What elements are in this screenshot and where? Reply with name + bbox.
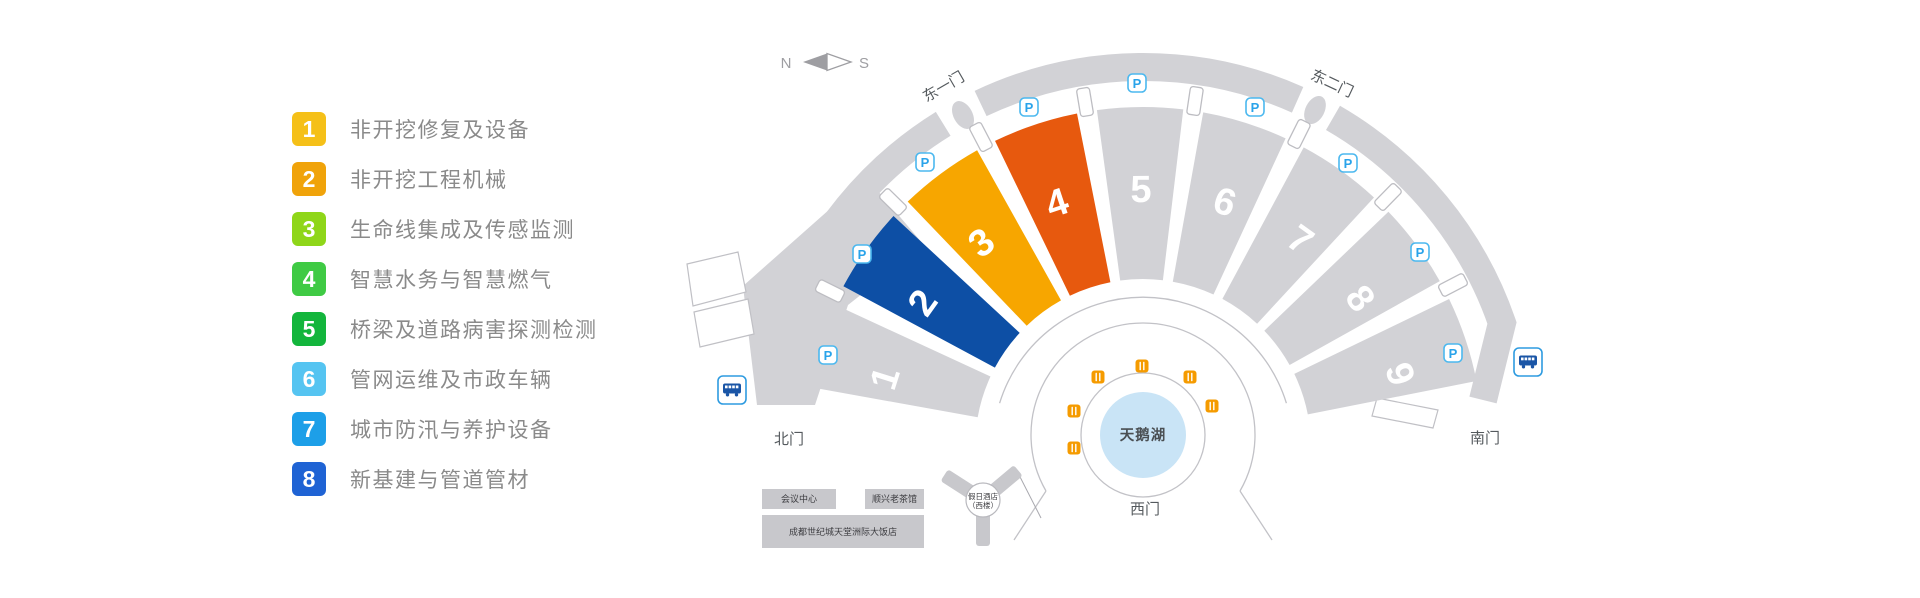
restaurant-icon [1136,360,1149,373]
holiday-inn-building: 假日酒店 （西楼） [941,465,1023,546]
compass-south-label: S [859,55,869,72]
south-gate-label: 南门 [1470,430,1500,447]
parking-icon: P [916,153,934,171]
west-corridor-line-left [1014,491,1046,540]
walkway-outline-left-2 [694,299,754,347]
restaurant-icon [1184,371,1197,384]
hall-connector [1187,86,1204,116]
svg-text:P: P [1416,245,1425,260]
compass-east-triangle-icon [827,54,851,71]
svg-text:P: P [921,155,930,170]
compass-north-label: N [781,55,792,72]
bus-stop-icon-right [1514,348,1542,376]
restaurant-icon [1068,442,1081,455]
inner-concourse-arc [1000,297,1287,403]
holiday-inn-label-line2: （西楼） [968,500,998,510]
parking-icon: P [1128,74,1146,92]
hall-connector [969,122,993,153]
svg-text:P: P [1025,100,1034,115]
compass: N S [781,54,869,73]
north-gate-label: 北门 [774,431,804,448]
svg-text:P: P [1251,100,1260,115]
svg-text:P: P [1133,76,1142,91]
intercontinental-hotel-label: 成都世纪城天堂洲际大饭店 [789,526,897,537]
hall-5-number: 5 [1130,169,1152,211]
conference-center-label: 会议中心 [781,493,817,504]
svg-text:P: P [1344,156,1353,171]
parking-icon: P [819,346,837,364]
hall-connector [1287,119,1311,150]
holiday-inn-label-line1: 假日酒店 [968,491,998,501]
east-gate-1-label: 东一门 [920,68,967,105]
page: 1 非开挖修复及设备 2 非开挖工程机械 3 生命线集成及传感监测 4 智慧水务… [0,0,1920,598]
parking-icon: P [1246,98,1264,116]
parking-icon: P [1444,344,1462,362]
svg-text:P: P [1449,346,1458,361]
bus-stop-icon-left [718,376,746,404]
buildings: 会议中心 顺兴老茶馆 成都世纪城天堂洲际大饭店 假日酒店 （西楼） [762,465,1041,548]
svg-text:P: P [824,348,833,363]
walkway-outline-left-1 [687,252,746,306]
west-corridor-line-right [1240,491,1272,540]
compass-west-triangle-icon [803,54,827,71]
parking-icon: P [1339,154,1357,172]
svg-text:P: P [858,247,867,262]
parking-icon: P [1020,98,1038,116]
venue-map: N S [0,0,1920,598]
walkway-outline-right [1372,398,1438,428]
hall-connector [1374,182,1403,211]
parking-icon: P [1411,243,1429,261]
hall-connector [1438,273,1469,297]
swan-lake-label: 天鹅湖 [1120,426,1167,444]
west-gate-label: 西门 [1130,501,1160,518]
restaurant-icon [1206,400,1219,413]
restaurant-icon [1068,405,1081,418]
parking-icon: P [853,245,871,263]
restaurant-icon [1092,371,1105,384]
east-gate-2-label: 东二门 [1308,67,1356,101]
teahouse-label: 顺兴老茶馆 [872,493,917,504]
hall-connector [1076,87,1093,117]
